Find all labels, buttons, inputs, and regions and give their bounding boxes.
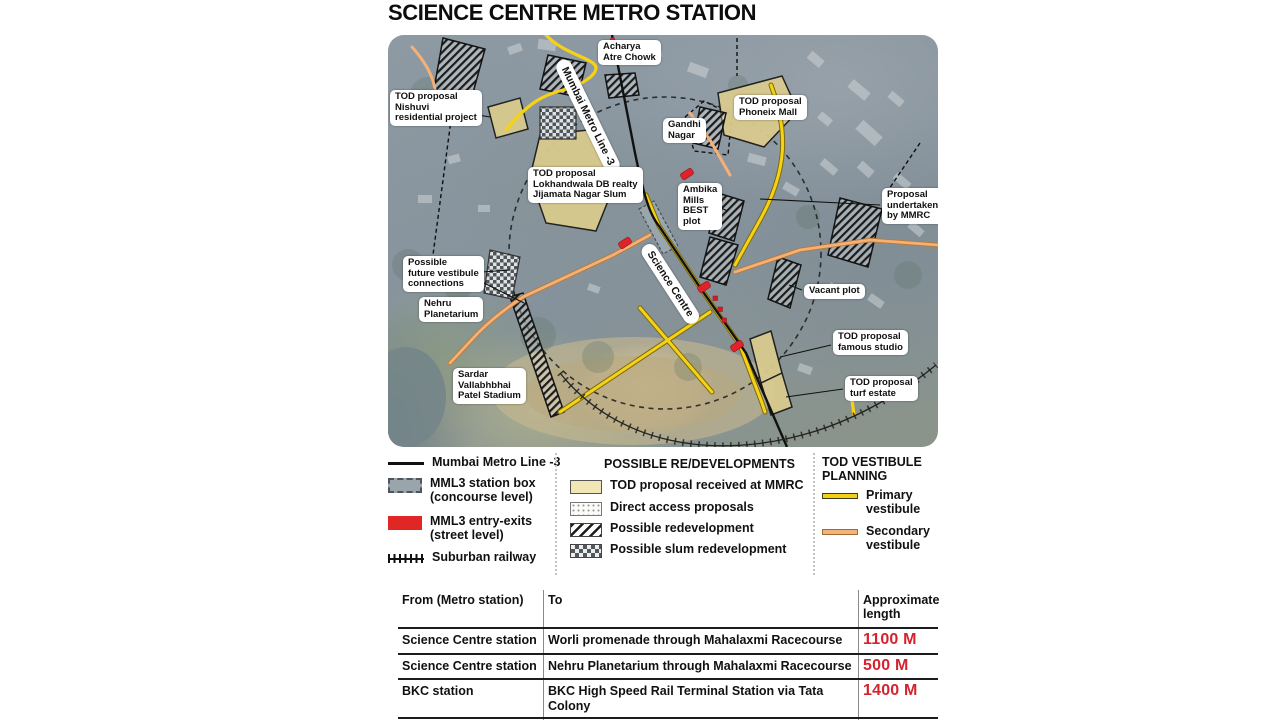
- map-label-tod-famous-studio: TOD proposal famous studio: [833, 330, 908, 355]
- station-box-swatch: [388, 478, 422, 493]
- legend-header-tod-vestibule: TOD VESTIBULE PLANNING: [822, 455, 922, 484]
- map-label-ambika-mills: Ambika Mills BEST plot: [678, 183, 722, 230]
- table-row: Science Centre station Worli promenade t…: [398, 629, 938, 655]
- map-label-tod-nishuvi: TOD proposal Nishuvi residential project: [390, 90, 482, 126]
- map-label-patel-stadium: Sardar Vallabhbhai Patel Stadium: [453, 368, 526, 404]
- legend-item-redevelopment: Possible redevelopment: [570, 522, 754, 537]
- cell-to: Worli promenade through Mahalaxmi Raceco…: [543, 629, 858, 653]
- cell-to: BKC High Speed Rail Terminal Station via…: [543, 680, 858, 717]
- table-header-row: From (Metro station) To Approximate leng…: [398, 590, 938, 629]
- cell-from: Science Centre station: [398, 655, 543, 679]
- table-row: BKC station BKC High Speed Rail Terminal…: [398, 680, 938, 719]
- tod-proposal-swatch: [570, 480, 602, 494]
- map-label-acharya-atre-chowk: Acharya Atre Chowk: [598, 40, 661, 65]
- table-row: Science Centre station Nehru Planetarium…: [398, 655, 938, 681]
- legend-item-metro-line: Mumbai Metro Line -3: [388, 456, 560, 470]
- entry-exit-swatch: [388, 516, 422, 530]
- table-header-length: Approximate length: [858, 590, 938, 627]
- map-label-vacant-plot: Vacant plot: [804, 284, 865, 299]
- page-title: SCIENCE CENTRE METRO STATION: [388, 0, 756, 26]
- map-label-mmrc-proposal: Proposal undertaken by MMRC: [882, 188, 938, 224]
- table-header-from: From (Metro station): [398, 590, 543, 627]
- legend-separator-2: [813, 453, 815, 575]
- cell-length: 500 M: [858, 655, 938, 679]
- primary-vestibule-swatch: [822, 493, 858, 499]
- legend-item-suburban-railway: Suburban railway: [388, 551, 536, 565]
- satellite-map: Acharya Atre Chowk TOD proposal Nishuvi …: [388, 35, 938, 447]
- redevelopment-swatch: [570, 523, 602, 537]
- map-label-tod-phoneix-mall: TOD proposal Phoneix Mall: [734, 95, 807, 120]
- slum-redevelopment-swatch: [570, 544, 602, 558]
- legend-item-secondary-vestibule: Secondary vestibule: [822, 525, 930, 553]
- map-label-gandhi-nagar: Gandhi Nagar: [663, 118, 706, 143]
- direct-access-swatch: [570, 502, 602, 516]
- map-label-tod-lokhandwala: TOD proposal Lokhandwala DB realty Jijam…: [528, 167, 643, 203]
- map-label-nehru-planetarium: Nehru Planetarium: [419, 297, 483, 322]
- railway-swatch: [388, 554, 424, 563]
- cell-to: Nehru Planetarium through Mahalaxmi Race…: [543, 655, 858, 679]
- cell-from: Science Centre station: [398, 629, 543, 653]
- map-label-tod-turf-estate: TOD proposal turf estate: [845, 376, 918, 401]
- cell-from: BKC station: [398, 680, 543, 717]
- infographic-science-centre-metro: SCIENCE CENTRE METRO STATION: [0, 0, 1280, 720]
- cell-length: 1400 M: [858, 680, 938, 717]
- legend-item-slum-redevelopment: Possible slum redevelopment: [570, 543, 786, 558]
- cell-length: 1100 M: [858, 629, 938, 653]
- map-label-future-vestibule: Possible future vestibule connections: [403, 256, 484, 292]
- metro-line-swatch: [388, 462, 424, 465]
- legend-item-entry-exits: MML3 entry-exits (street level): [388, 515, 532, 543]
- legend-header-redevelopments: POSSIBLE RE/DEVELOPMENTS: [604, 457, 795, 471]
- secondary-vestibule-swatch: [822, 529, 858, 535]
- legend-item-station-box: MML3 station box (concourse level): [388, 477, 536, 505]
- legend-item-tod-received: TOD proposal received at MMRC: [570, 479, 804, 494]
- legend-separator-1: [555, 453, 557, 575]
- table-header-to: To: [543, 590, 858, 627]
- distance-table: From (Metro station) To Approximate leng…: [398, 590, 938, 720]
- legend-item-direct-access: Direct access proposals: [570, 501, 754, 516]
- legend-item-primary-vestibule: Primary vestibule: [822, 489, 920, 517]
